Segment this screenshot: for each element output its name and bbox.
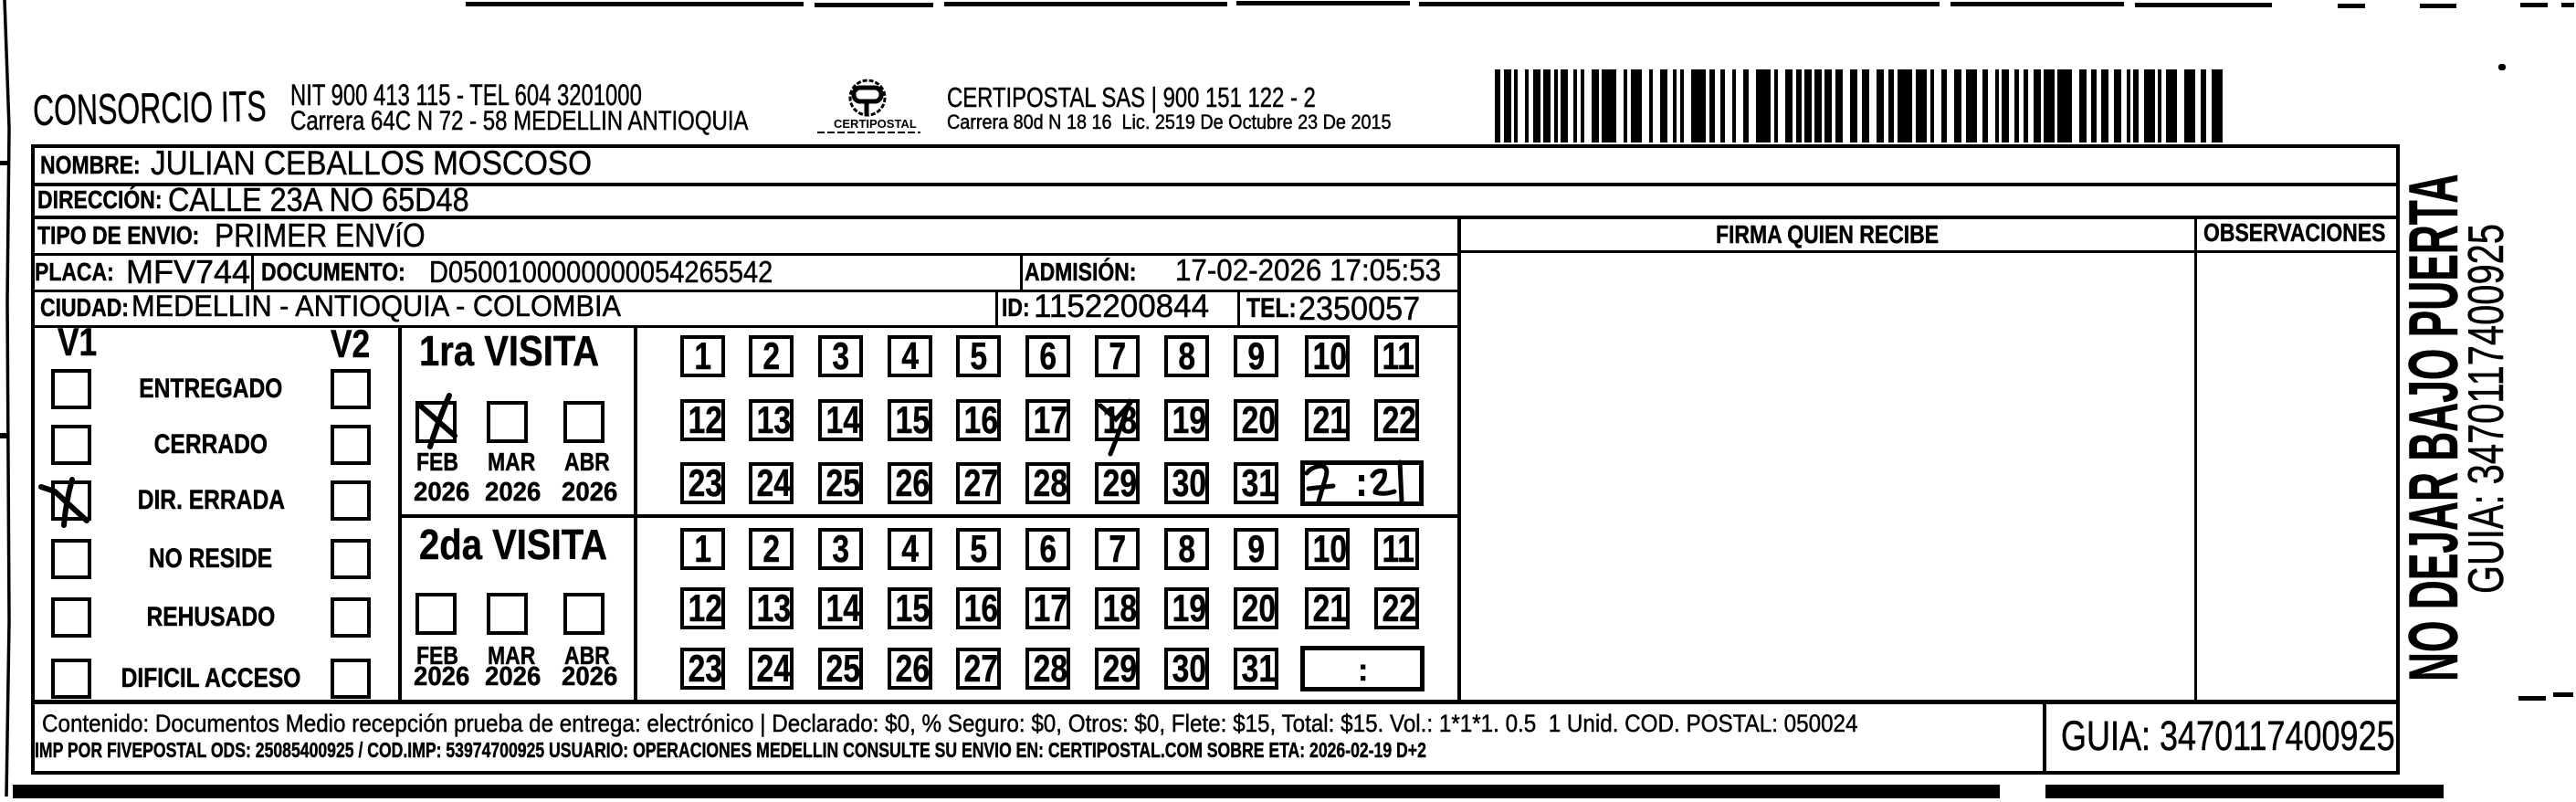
svg-text:CERTIPOSTAL: CERTIPOSTAL [834,117,917,131]
